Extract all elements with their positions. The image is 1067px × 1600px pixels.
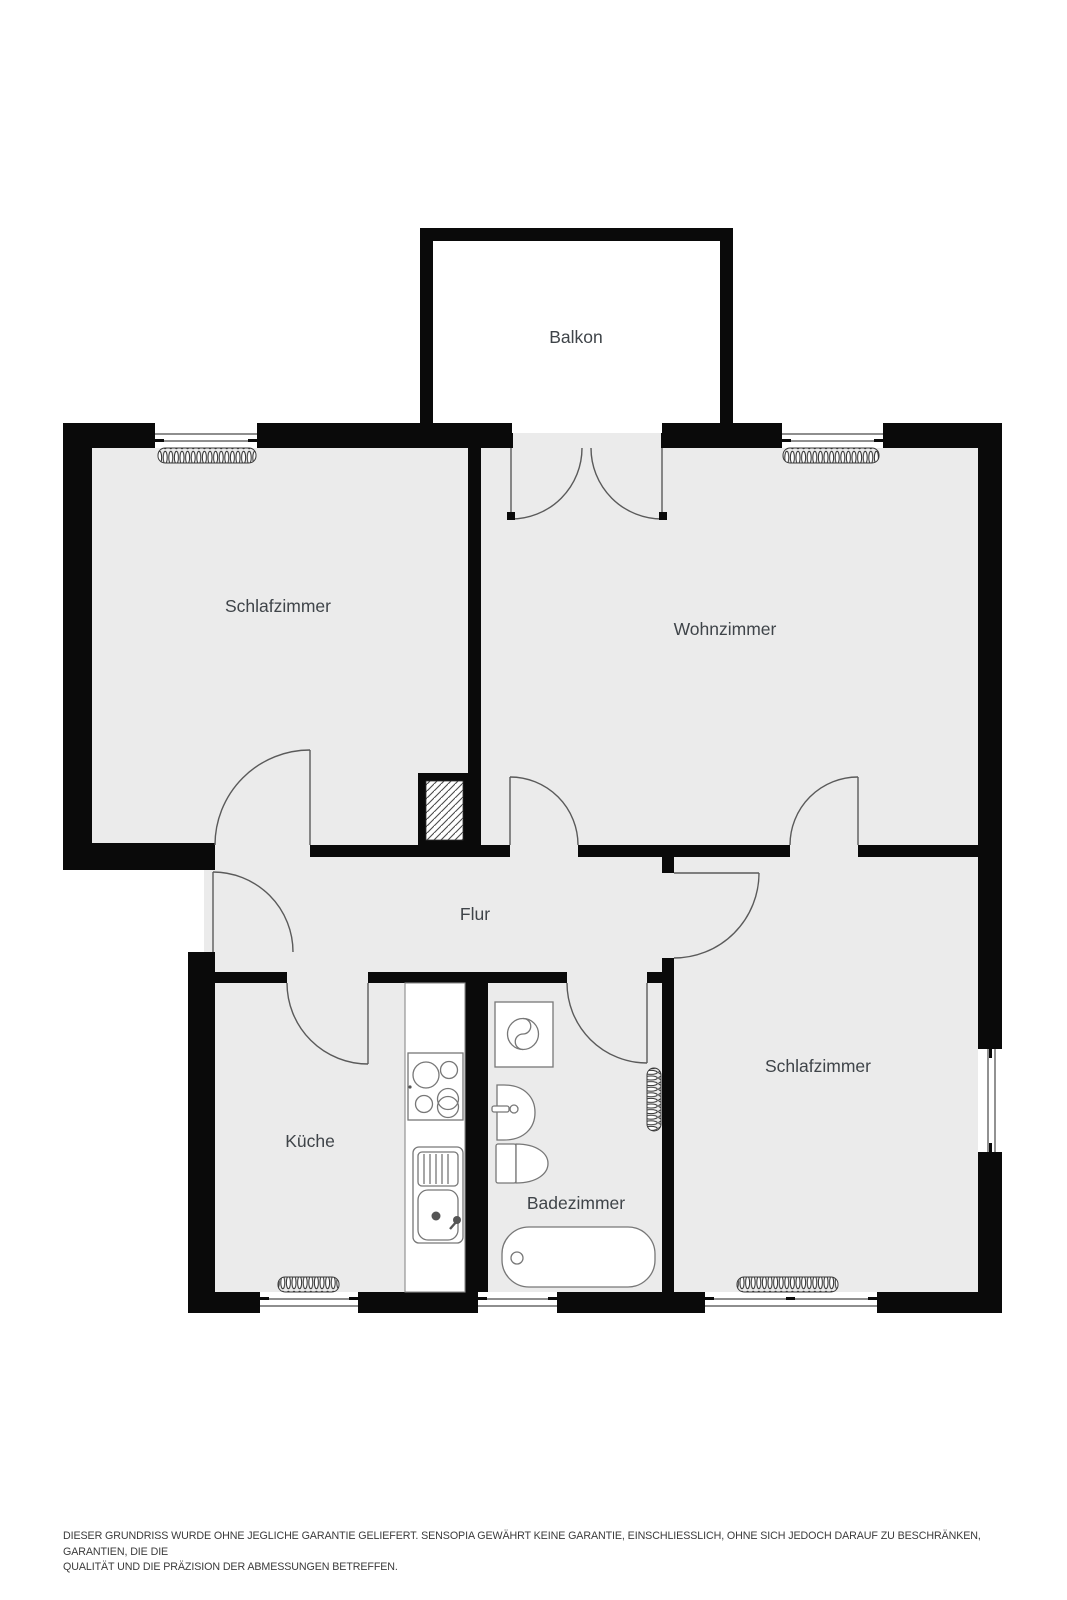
flur-floor [204, 845, 662, 972]
room-label-kueche: Küche [285, 1131, 335, 1151]
disclaimer-line-2: QUALITÄT UND DIE PRÄZISION DER ABMESSUNG… [63, 1560, 1013, 1576]
balcony-jamb-left [506, 433, 513, 448]
window-schlafzimmer-right [978, 1049, 1002, 1152]
room-label-flur: Flur [460, 904, 490, 924]
balcony-wall-left [420, 228, 433, 433]
schlafzimmer-top-floor [92, 448, 468, 847]
balcony-jamb-right [661, 433, 668, 448]
kitchen-sink-icon [413, 1147, 463, 1243]
wall-right [978, 423, 1002, 1313]
opening-kueche [287, 972, 368, 983]
radiator-icon [278, 1277, 339, 1292]
wall-kitchen-bath [463, 983, 488, 1292]
window-badezimmer [478, 1292, 557, 1313]
wall-flur-top [215, 845, 978, 857]
balcony-wall-top [420, 228, 733, 241]
shaft-upper-hatch [426, 781, 463, 840]
opening-wohnzimmer [510, 845, 578, 857]
opening-badezimmer [567, 972, 647, 983]
opening-bedroom-flur [662, 873, 674, 958]
wall-left [63, 423, 92, 870]
wall-top-left [63, 423, 512, 448]
room-label-wohnzimmer: Wohnzimmer [674, 619, 777, 639]
window-schlafzimmer-top [155, 423, 257, 448]
kitchen-counter [405, 983, 465, 1292]
floor-plan-canvas: Balkon Schlafzimmer Wohnzimmer Flur Küch… [0, 0, 1067, 1600]
disclaimer-line-1: DIESER GRUNDRISS WURDE OHNE JEGLICHE GAR… [63, 1529, 1013, 1560]
radiator-icon [158, 448, 256, 463]
opening-schlafzimmer-top [215, 845, 310, 857]
window-wohnzimmer [782, 423, 883, 448]
kitchen-fixtures [405, 983, 465, 1292]
window-kueche [260, 1292, 358, 1313]
wall-exterior-step [63, 843, 215, 870]
room-label-badezimmer: Badezimmer [527, 1193, 625, 1213]
radiator-icon [737, 1277, 838, 1292]
balcony-wall-right [720, 228, 733, 433]
opening-bedroom-living [790, 845, 858, 857]
radiator-icon [647, 1068, 661, 1131]
radiator-icon [783, 448, 879, 463]
opening-balcony [512, 433, 662, 448]
wall-left-lower [188, 952, 215, 1313]
room-label-balkon: Balkon [549, 327, 603, 347]
wohnzimmer-floor [481, 448, 978, 845]
floor-plan-page: Balkon Schlafzimmer Wohnzimmer Flur Küch… [0, 0, 1067, 1600]
bathtub-icon [502, 1227, 655, 1287]
stove-icon [408, 1053, 463, 1120]
room-label-schlafzimmer-top: Schlafzimmer [225, 596, 331, 616]
window-schlafzimmer-bottom [705, 1292, 877, 1313]
toilet-icon [496, 1144, 548, 1183]
disclaimer-text: DIESER GRUNDRISS WURDE OHNE JEGLICHE GAR… [63, 1529, 1013, 1576]
washing-machine-icon [495, 1002, 553, 1067]
room-label-schlafzimmer-bottom: Schlafzimmer [765, 1056, 871, 1076]
